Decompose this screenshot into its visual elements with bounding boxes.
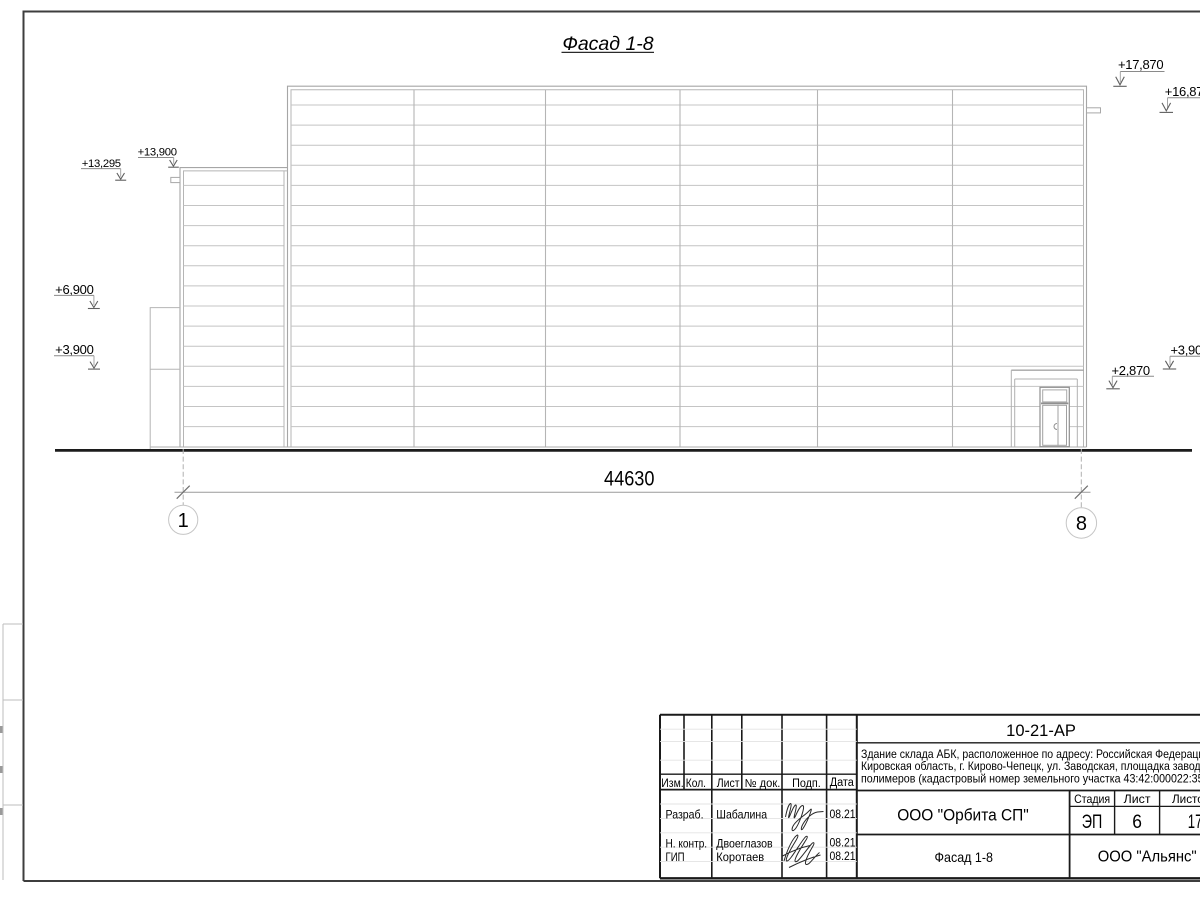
svg-text:08.21: 08.21 <box>830 836 856 850</box>
svg-text:Стадия: Стадия <box>1074 792 1110 806</box>
svg-text:8: 8 <box>1076 513 1087 535</box>
svg-text:+2,870: +2,870 <box>1112 363 1150 378</box>
svg-text:Кол.: Кол. <box>686 778 706 790</box>
svg-text:Коротаев: Коротаев <box>716 850 764 864</box>
svg-text:Листов: Листов <box>1172 792 1200 806</box>
svg-text:ООО "Орбита СП": ООО "Орбита СП" <box>897 807 1029 825</box>
svg-text:1: 1 <box>178 510 189 532</box>
svg-text:+6,900: +6,900 <box>55 282 93 297</box>
svg-text:6: 6 <box>1132 812 1142 833</box>
svg-text:Двоеглазов: Двоеглазов <box>716 837 772 851</box>
svg-text:+13,900: +13,900 <box>138 146 177 158</box>
svg-text:08.21: 08.21 <box>830 807 856 821</box>
svg-text:ООО "Альянс": ООО "Альянс" <box>1098 849 1197 866</box>
svg-text:44630: 44630 <box>604 468 655 491</box>
svg-text:Лист: Лист <box>717 778 740 790</box>
svg-text:ЭП: ЭП <box>1082 812 1103 833</box>
svg-text:+3,900: +3,900 <box>1171 342 1200 357</box>
svg-text:ГИП: ГИП <box>666 850 685 864</box>
svg-text:17: 17 <box>1188 812 1200 833</box>
svg-text:Н. контр.: Н. контр. <box>666 837 708 851</box>
svg-text:Разраб.: Разраб. <box>666 808 704 822</box>
svg-text:полимеров (кадастровый номер з: полимеров (кадастровый номер земельного … <box>861 771 1200 785</box>
svg-text:08.21: 08.21 <box>830 849 856 863</box>
svg-text:10-21-АР: 10-21-АР <box>1006 722 1076 740</box>
svg-text:+3,900: +3,900 <box>55 342 93 357</box>
svg-text:Изм.: Изм. <box>661 778 683 790</box>
svg-text:+17,870: +17,870 <box>1118 57 1163 72</box>
svg-text:Лист: Лист <box>1124 792 1151 806</box>
svg-text:+13,295: +13,295 <box>82 158 121 170</box>
svg-text:Дата: Дата <box>830 777 855 789</box>
svg-text:Шабалина: Шабалина <box>716 808 767 822</box>
svg-text:+16,870: +16,870 <box>1165 84 1200 99</box>
svg-text:Подп.: Подп. <box>792 778 821 790</box>
svg-text:№ док.: № док. <box>745 778 781 790</box>
svg-text:Фасад 1-8: Фасад 1-8 <box>935 849 994 865</box>
